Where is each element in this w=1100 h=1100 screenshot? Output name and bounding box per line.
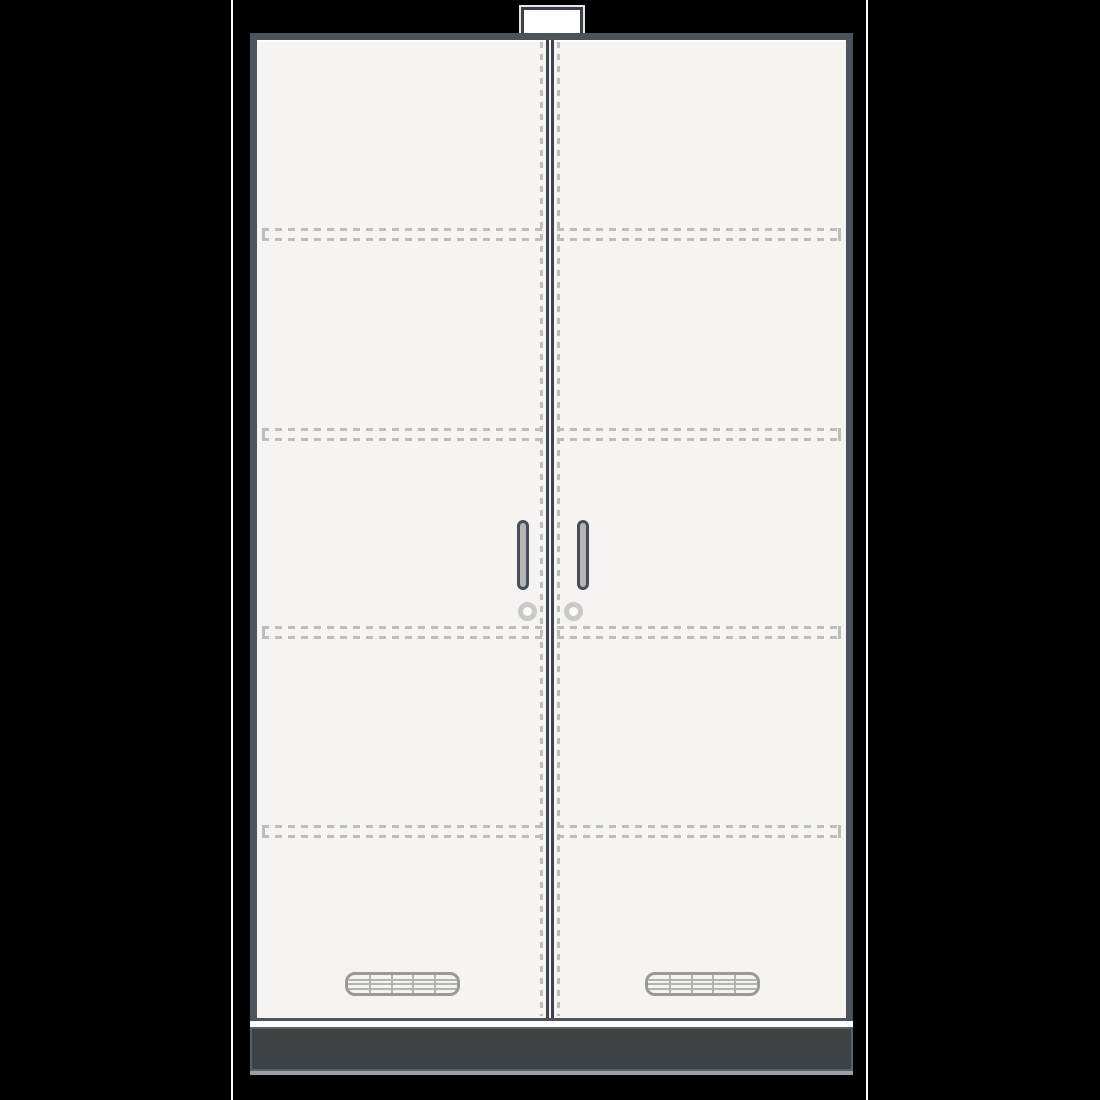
- shelf-end-tick: [838, 228, 841, 241]
- shelf-end-tick: [262, 825, 265, 838]
- shelf-dashed-line: [557, 428, 840, 431]
- page-background: [0, 0, 1100, 1100]
- shelf-dashed-line: [557, 238, 840, 241]
- left-door: [257, 40, 546, 1018]
- right-door-handle: [577, 520, 589, 590]
- shelf-dashed-line: [557, 636, 840, 639]
- shelf-dashed-line: [262, 438, 545, 441]
- left-door-handle: [517, 520, 529, 590]
- plinth-base: [250, 1027, 853, 1071]
- right-door-vent-grille: [645, 972, 760, 996]
- shelf-dashed-line: [262, 428, 545, 431]
- left-door-dashed-edge-line: [540, 42, 543, 1016]
- shelf-dashed-line: [262, 238, 545, 241]
- shelf-dashed-line: [557, 825, 840, 828]
- vent-grid-row: [348, 988, 457, 990]
- right-door: [554, 40, 846, 1018]
- vent-grid-row: [348, 983, 457, 985]
- vent-grid-row: [648, 988, 757, 990]
- shelf-dashed-line: [262, 835, 545, 838]
- left-margin-rule: [231, 0, 233, 1100]
- shelf-dashed-line: [557, 228, 840, 231]
- shelf-end-tick: [262, 228, 265, 241]
- shelf-dashed-line: [557, 438, 840, 441]
- vent-grid-row: [648, 979, 757, 981]
- door-seam-right-edge: [551, 40, 554, 1018]
- shelf-dashed-line: [557, 626, 840, 629]
- shelf-end-tick: [838, 626, 841, 639]
- shelf-dashed-line: [262, 626, 545, 629]
- shelf-end-tick: [838, 428, 841, 441]
- right-door-lock-cylinder: [564, 602, 583, 621]
- vent-grid-row: [648, 983, 757, 985]
- door-seam-left-edge: [546, 40, 549, 1018]
- left-door-lock-cylinder: [518, 602, 537, 621]
- shelf-end-tick: [262, 428, 265, 441]
- shelf-dashed-line: [262, 228, 545, 231]
- plinth-base-trim: [250, 1071, 853, 1075]
- vent-grid-row: [348, 979, 457, 981]
- shelf-dashed-line: [557, 835, 840, 838]
- right-door-dashed-edge-line: [557, 42, 560, 1016]
- shelf-end-tick: [838, 825, 841, 838]
- left-door-vent-grille: [345, 972, 460, 996]
- shelf-dashed-line: [262, 825, 545, 828]
- shelf-dashed-line: [262, 636, 545, 639]
- right-margin-rule: [866, 0, 868, 1100]
- shelf-end-tick: [262, 626, 265, 639]
